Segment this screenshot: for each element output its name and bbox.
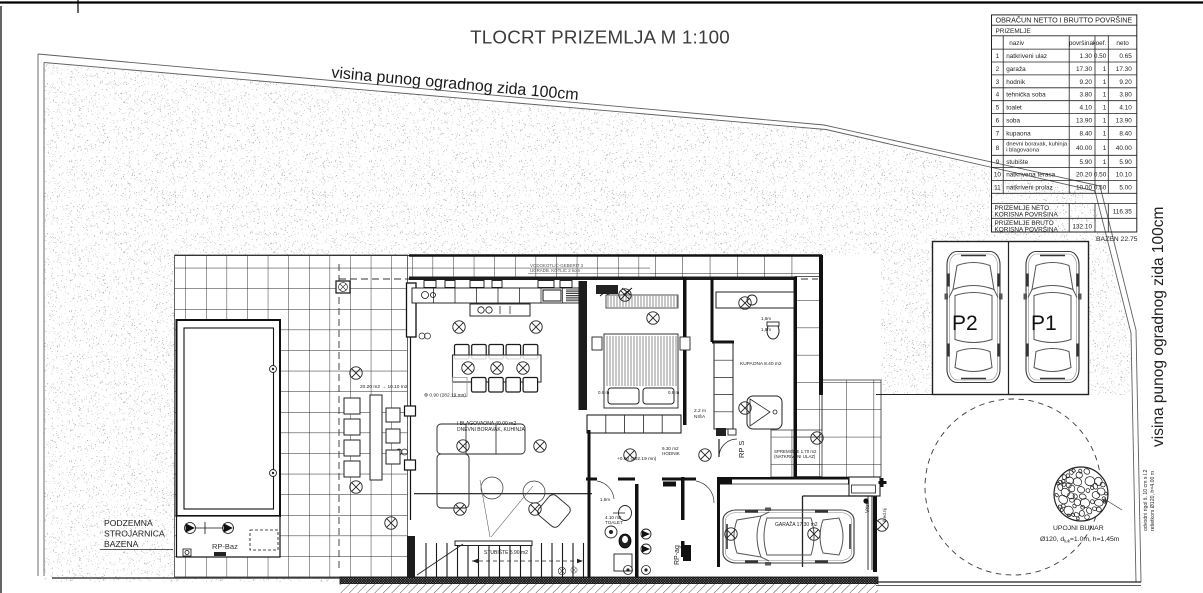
svg-text:10: 10 — [994, 171, 1002, 178]
svg-text:0.50: 0.50 — [1094, 53, 1107, 60]
svg-text:(NATKRIVENI ULAZ): (NATKRIVENI ULAZ) — [774, 454, 816, 459]
svg-text:⊕ 0.90 (282.19 mn): ⊕ 0.90 (282.19 mn) — [424, 393, 466, 399]
svg-text:9.20: 9.20 — [1119, 79, 1132, 86]
svg-text:toalet: toalet — [1006, 105, 1022, 112]
svg-text:1: 1 — [1103, 92, 1107, 99]
svg-text:TLOCRT PRIZEMLJA M 1:100: TLOCRT PRIZEMLJA M 1:100 — [470, 27, 730, 48]
svg-text:HODNIK: HODNIK — [662, 451, 681, 456]
svg-text:DNEVNI BORAVAK, KUHINJA: DNEVNI BORAVAK, KUHINJA — [457, 427, 526, 433]
svg-text:PRIZEMLJE: PRIZEMLJE — [996, 28, 1031, 35]
svg-text:10.00: 10.00 — [1076, 184, 1092, 191]
svg-text:površina: površina — [1069, 40, 1094, 47]
svg-text:0.6 m: 0.6 m — [598, 390, 610, 395]
svg-text:+0.00 (282.19 mn): +0.00 (282.19 mn) — [617, 456, 657, 462]
svg-text:KORISNA POVRŠINA: KORISNA POVRŠINA — [995, 210, 1059, 219]
svg-text:1: 1 — [996, 53, 1000, 60]
svg-text:10.10: 10.10 — [1116, 171, 1132, 178]
svg-text:132.10: 132.10 — [1072, 223, 1092, 230]
svg-text:13.90: 13.90 — [1076, 118, 1092, 125]
svg-text:8.40: 8.40 — [1119, 130, 1132, 137]
svg-text:1: 1 — [1103, 66, 1107, 73]
svg-text:9.20: 9.20 — [1080, 79, 1093, 86]
svg-text:0.6 m: 0.6 m — [668, 390, 680, 395]
svg-text:KUPAONA 8.40 m2: KUPAONA 8.40 m2 — [740, 361, 782, 367]
svg-text:11: 11 — [994, 184, 1001, 191]
svg-text:stubište: stubište — [1006, 159, 1028, 166]
svg-text:2.2 m: 2.2 m — [694, 408, 706, 414]
svg-text:0.50: 0.50 — [1094, 171, 1107, 178]
svg-text:1: 1 — [1103, 105, 1107, 112]
svg-text:naziv: naziv — [1009, 40, 1025, 47]
svg-text:UGRADB. KOTLIĆ 2 kom: UGRADB. KOTLIĆ 2 kom — [530, 268, 581, 273]
svg-text:4: 4 — [996, 92, 1000, 99]
svg-text:GARAŽA 17.30 m2: GARAŽA 17.30 m2 — [775, 520, 818, 528]
svg-text:P1: P1 — [1031, 312, 1057, 335]
svg-text:neto: neto — [1116, 40, 1129, 47]
svg-text:NIŠA: NIŠA — [694, 413, 706, 420]
svg-text:natkrivena terasa: natkrivena terasa — [1006, 171, 1055, 178]
svg-text:RP-Baz: RP-Baz — [212, 542, 238, 551]
svg-text:RP S: RP S — [737, 441, 746, 458]
svg-text:9: 9 — [996, 159, 1000, 166]
svg-text:13.90: 13.90 — [1116, 118, 1132, 125]
svg-text:4.10: 4.10 — [1080, 105, 1093, 112]
svg-text:5.00: 5.00 — [1119, 184, 1132, 191]
svg-text:STROJARNICA: STROJARNICA — [104, 529, 165, 539]
svg-text:KORISNA POVRŠINA: KORISNA POVRŠINA — [995, 224, 1059, 233]
svg-text:20.20 m2 → 10.10 m2: 20.20 m2 → 10.10 m2 — [360, 384, 408, 390]
svg-text:OBRAČUN NETTO I BRUTTO POVRŠIN: OBRAČUN NETTO I BRUTTO POVRŠINE — [996, 16, 1133, 25]
svg-text:TOALET: TOALET — [605, 520, 623, 525]
svg-text:0.65: 0.65 — [1119, 53, 1132, 60]
svg-text:1.30: 1.30 — [1080, 53, 1093, 60]
svg-text:116.35: 116.35 — [1113, 209, 1133, 216]
svg-text:visina punog ogradnog zida 100: visina punog ogradnog zida 100cm — [1150, 207, 1167, 447]
svg-text:BAZEN 22.75: BAZEN 22.75 — [1096, 236, 1138, 243]
svg-text:1: 1 — [1103, 79, 1107, 86]
svg-text:20.20: 20.20 — [1076, 171, 1092, 178]
svg-text:17.30: 17.30 — [1116, 66, 1132, 73]
svg-text:koef.: koef. — [1092, 40, 1106, 47]
svg-text:tehnička soba: tehnička soba — [1006, 92, 1046, 99]
svg-text:RP-ag: RP-ag — [674, 545, 681, 565]
svg-text:1,8m: 1,8m — [761, 327, 771, 332]
svg-text:17.30: 17.30 — [1076, 66, 1092, 73]
svg-text:hodnik: hodnik — [1006, 79, 1026, 86]
svg-text:6: 6 — [996, 118, 1000, 125]
svg-text:5: 5 — [996, 105, 1000, 112]
svg-text:1: 1 — [1103, 118, 1107, 125]
svg-text:kupaona: kupaona — [1006, 130, 1031, 137]
svg-text:garaža: garaža — [1006, 66, 1026, 73]
svg-text:4.10: 4.10 — [1119, 105, 1132, 112]
svg-text:STUBIŠTE 5.90 m2: STUBIŠTE 5.90 m2 — [484, 549, 528, 556]
svg-text:7: 7 — [996, 130, 1000, 137]
svg-text:8.40: 8.40 — [1080, 130, 1093, 137]
svg-text:40.00: 40.00 — [1076, 145, 1092, 152]
svg-text:1,6m: 1,6m — [600, 497, 610, 502]
svg-text:8: 8 — [996, 145, 1000, 152]
svg-text:5.90: 5.90 — [1080, 159, 1093, 166]
svg-text:1: 1 — [1103, 130, 1107, 137]
svg-text:šted.nj: šted.nj — [882, 508, 887, 522]
svg-text:0.50: 0.50 — [1094, 184, 1107, 191]
svg-text:UPOJNI BUNAR: UPOJNI BUNAR — [1053, 525, 1104, 532]
svg-text:3: 3 — [996, 79, 1000, 86]
svg-text:3.80: 3.80 — [1080, 92, 1093, 99]
svg-text:natkriveni prolaz: natkriveni prolaz — [1006, 184, 1053, 191]
svg-text:BAZENA: BAZENA — [104, 539, 139, 549]
svg-text:natkriveni ulaz: natkriveni ulaz — [1006, 53, 1047, 60]
svg-text:3.80: 3.80 — [1119, 92, 1132, 99]
svg-text:rešetkom Ø120, h=4.00 m: rešetkom Ø120, h=4.00 m — [1150, 471, 1156, 531]
svg-text:1: 1 — [1103, 145, 1107, 152]
svg-text:odvodni rigol š. 10 cm s l.2: odvodni rigol š. 10 cm s l.2 — [1143, 469, 1149, 531]
svg-text:soba: soba — [1006, 118, 1020, 125]
svg-text:Vrtm: Vrtm — [865, 501, 871, 513]
svg-text:i blagovaona: i blagovaona — [1006, 148, 1040, 154]
svg-text:Ø120, dluk=1.0m, h=1,45m: Ø120, dluk=1.0m, h=1,45m — [1040, 536, 1120, 544]
svg-text:1,6m: 1,6m — [761, 316, 771, 321]
svg-text:1: 1 — [1103, 159, 1107, 166]
svg-text:40.00: 40.00 — [1116, 145, 1132, 152]
svg-text:P2: P2 — [952, 312, 978, 335]
svg-text:PODZEMNA: PODZEMNA — [104, 518, 153, 528]
svg-text:5.90: 5.90 — [1119, 159, 1132, 166]
svg-text:2: 2 — [996, 66, 1000, 73]
